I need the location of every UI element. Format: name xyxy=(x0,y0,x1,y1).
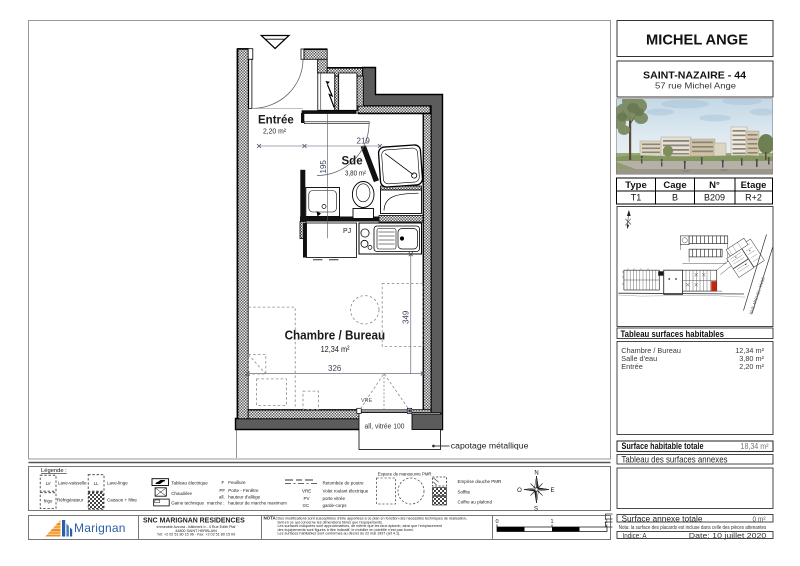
svg-text:hauteur de marche maximum: hauteur de marche maximum xyxy=(228,501,287,506)
svg-text:Lave-linge: Lave-linge xyxy=(107,480,128,485)
svg-text:Type: Type xyxy=(625,180,646,191)
svg-text:capotage métallique: capotage métallique xyxy=(451,442,529,451)
svg-text:T1: T1 xyxy=(631,193,642,203)
svg-text:Chaudière: Chaudière xyxy=(171,491,192,496)
svg-text:B: B xyxy=(672,193,678,203)
svg-text:0 m²: 0 m² xyxy=(753,514,766,523)
svg-text:1: 1 xyxy=(550,519,553,525)
svg-text:Retombée de poutre: Retombée de poutre xyxy=(323,480,365,485)
svg-text:E: E xyxy=(550,488,554,494)
svg-text:Gaine technique: Gaine technique xyxy=(171,501,204,506)
svg-text:LV: LV xyxy=(46,481,51,486)
svg-text:Marignan: Marignan xyxy=(74,521,126,535)
svg-text:all.: all. xyxy=(219,494,225,499)
svg-text:Volet roulant électrique: Volet roulant électrique xyxy=(323,488,369,493)
svg-text:PV: PV xyxy=(304,496,310,501)
svg-text:N: N xyxy=(534,471,538,477)
svg-text:Surface annexe totale: Surface annexe totale xyxy=(622,513,703,523)
svg-text:garde-corps: garde-corps xyxy=(323,503,348,508)
svg-text:PF: PF xyxy=(219,488,225,493)
svg-text:Tableau surfaces habitables: Tableau surfaces habitables xyxy=(621,329,725,339)
svg-text:57 rue Michel Ange: 57 rue Michel Ange xyxy=(655,82,737,91)
svg-text:2: 2 xyxy=(604,519,607,525)
svg-text:hauteur d'allège: hauteur d'allège xyxy=(228,494,260,499)
svg-text:Les surfaces habitables sont c: Les surfaces habitables sont conformes a… xyxy=(278,532,401,536)
svg-text:Tél: +2 02 51 80 15 96 - Fax:: Tél: +2 02 51 80 15 96 - Fax: +2 02 51 8… xyxy=(157,533,235,537)
svg-text:Espace de manoeuvre PMR: Espace de manoeuvre PMR xyxy=(378,471,432,476)
svg-text:SAINT-NAZAIRE - 44: SAINT-NAZAIRE - 44 xyxy=(643,70,746,82)
svg-text:GC: GC xyxy=(303,503,311,508)
svg-text:S: S xyxy=(534,507,538,513)
svg-text:Légende :: Légende : xyxy=(41,468,67,474)
svg-text:porte vitrée: porte vitrée xyxy=(323,496,346,501)
svg-text:NOTA:: NOTA: xyxy=(264,516,278,521)
svg-text:12,34 m²: 12,34 m² xyxy=(321,344,350,354)
svg-text:Date: 10 juillet 2020: Date: 10 juillet 2020 xyxy=(689,531,767,540)
svg-text:219: 219 xyxy=(357,137,371,146)
svg-text:18,34 m²: 18,34 m² xyxy=(741,442,769,451)
svg-text:Sde: Sde xyxy=(342,156,363,168)
svg-text:0: 0 xyxy=(495,519,498,525)
svg-text:Caisson + filtre: Caisson + filtre xyxy=(107,498,137,503)
svg-text:Lave-vaisselle: Lave-vaisselle xyxy=(58,480,87,485)
svg-text:Indice: A: Indice: A xyxy=(623,531,647,540)
svg-text:MICHEL ANGE: MICHEL ANGE xyxy=(646,32,748,49)
svg-text:Entrée: Entrée xyxy=(258,115,294,127)
svg-text:VRE: VRE xyxy=(361,398,373,404)
svg-text:B209: B209 xyxy=(704,193,725,203)
svg-text:Porte - Fenêtre: Porte - Fenêtre xyxy=(228,488,259,493)
svg-text:SNC MARIGNAN RESIDENCES: SNC MARIGNAN RESIDENCES xyxy=(143,516,245,525)
svg-text:Surface habitable totale: Surface habitable totale xyxy=(622,441,704,451)
svg-text:Chambre / Bureau: Chambre / Bureau xyxy=(285,329,386,343)
svg-text:Tableau des surfaces annexes: Tableau des surfaces annexes xyxy=(622,454,729,464)
svg-text:all, vitrée 100: all, vitrée 100 xyxy=(365,422,405,431)
svg-text:LL: LL xyxy=(94,481,99,486)
svg-text:F: F xyxy=(222,480,225,485)
svg-text:349: 349 xyxy=(402,310,411,324)
svg-text:Soffite: Soffite xyxy=(458,490,471,495)
svg-text:VRE: VRE xyxy=(302,488,311,493)
svg-text:Emprise douche PMR: Emprise douche PMR xyxy=(458,479,503,484)
svg-text:marche :: marche : xyxy=(207,501,225,506)
svg-text:Tableau électrique: Tableau électrique xyxy=(171,480,208,485)
svg-text:2,20 m²: 2,20 m² xyxy=(263,127,286,136)
svg-text:N°: N° xyxy=(709,180,720,191)
svg-text:Feuillure: Feuillure xyxy=(228,480,246,485)
svg-text:2,20 m²: 2,20 m² xyxy=(739,362,764,371)
svg-text:Cage: Cage xyxy=(663,180,686,191)
svg-text:Etage: Etage xyxy=(741,180,767,191)
svg-text:PJ: PJ xyxy=(343,228,351,235)
svg-text:Réfrigérateur: Réfrigérateur xyxy=(57,498,84,503)
svg-text:326: 326 xyxy=(328,364,342,373)
svg-text:R+2: R+2 xyxy=(745,193,762,203)
svg-text:Coffre au plafond: Coffre au plafond xyxy=(458,500,493,505)
svg-text:195: 195 xyxy=(319,160,328,174)
svg-text:O: O xyxy=(517,488,522,494)
svg-text:3,80 m²: 3,80 m² xyxy=(345,169,366,178)
svg-text:frigo: frigo xyxy=(44,499,53,504)
svg-text:Entrée: Entrée xyxy=(621,362,643,371)
